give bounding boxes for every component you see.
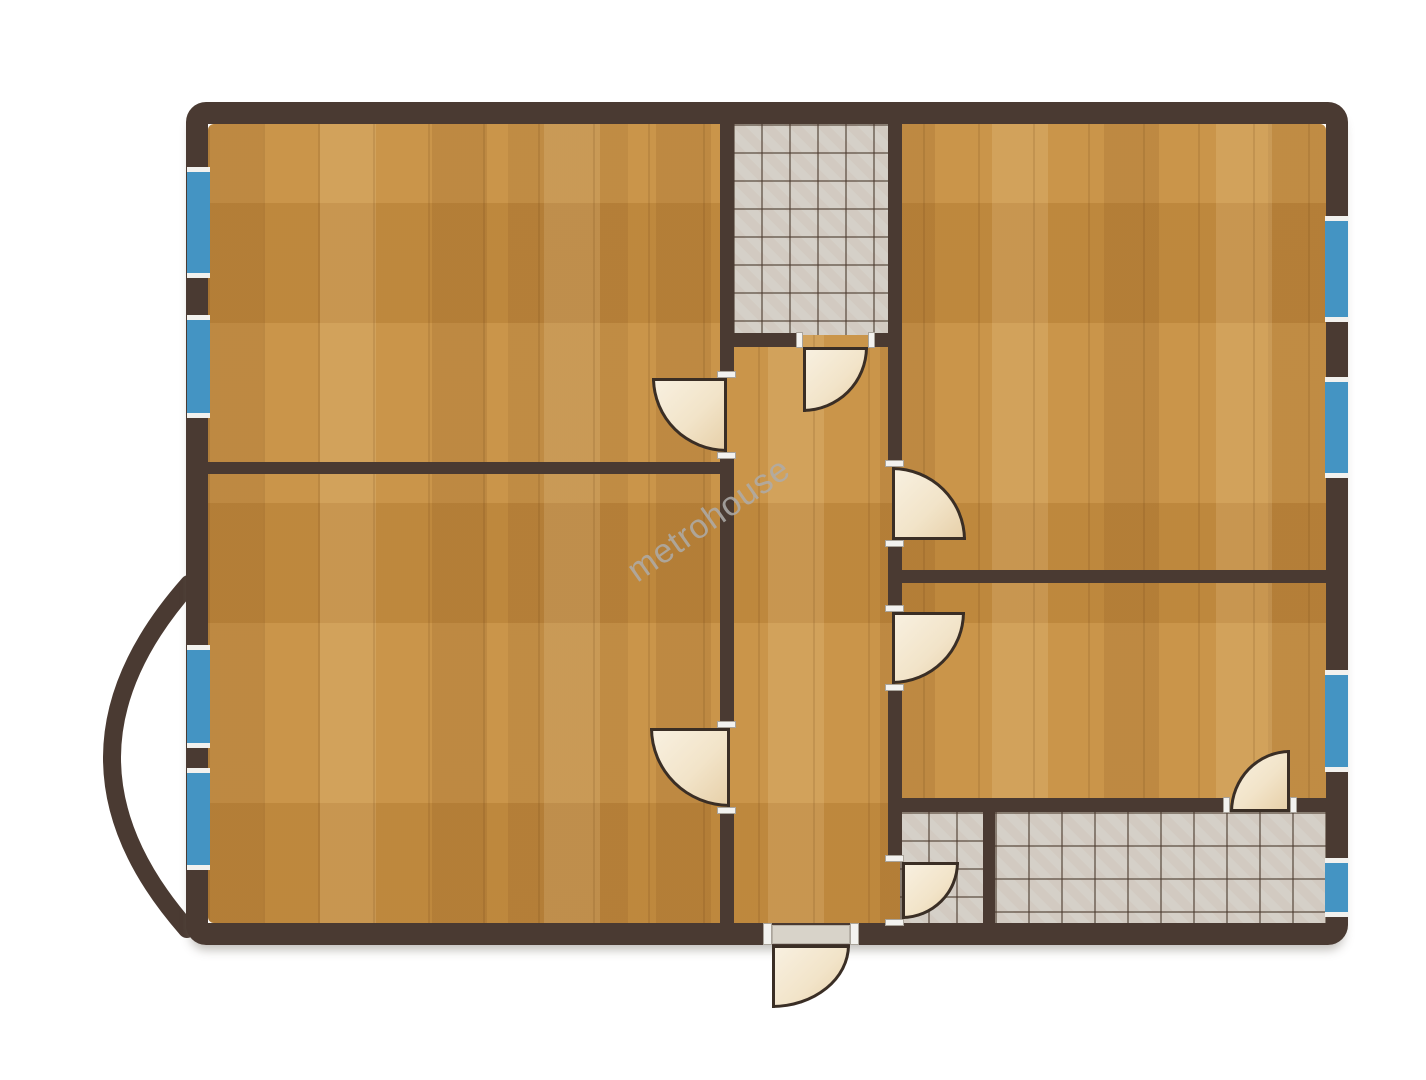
jamb-room-bottom-left-b	[717, 807, 736, 814]
jamb-room-bottom-right-a	[885, 605, 904, 612]
window-right-2	[1325, 377, 1348, 478]
jamb-room-top-right-a	[885, 460, 904, 467]
window-right-3	[1325, 670, 1348, 772]
outer-wall	[186, 102, 1348, 945]
jamb-room-top-left-a	[717, 371, 736, 378]
window-left-4	[187, 768, 210, 870]
entrance-threshold	[772, 925, 850, 944]
window-left-3	[187, 645, 210, 748]
balcony-arc	[112, 584, 189, 929]
door-entrance	[772, 945, 850, 1008]
window-right-1	[1325, 216, 1348, 322]
jamb-entrance-a	[763, 923, 772, 945]
jamb-wc-a	[796, 332, 803, 348]
jamb-bathroom-large-a	[1223, 797, 1230, 813]
jamb-bathroom-large-b	[1290, 797, 1297, 813]
window-right-4	[1325, 858, 1348, 917]
jamb-wc-b	[868, 332, 875, 348]
window-left-1	[187, 167, 210, 278]
floor-plan: metrohouse	[0, 0, 1426, 1080]
window-left-2	[187, 315, 210, 418]
jamb-bathroom-small-a	[885, 855, 904, 862]
jamb-room-bottom-right-b	[885, 684, 904, 691]
jamb-bathroom-small-b	[885, 919, 904, 926]
jamb-room-top-right-b	[885, 540, 904, 547]
jamb-room-top-left-b	[717, 452, 736, 459]
jamb-room-bottom-left-a	[717, 721, 736, 728]
jamb-entrance-b	[850, 923, 859, 945]
